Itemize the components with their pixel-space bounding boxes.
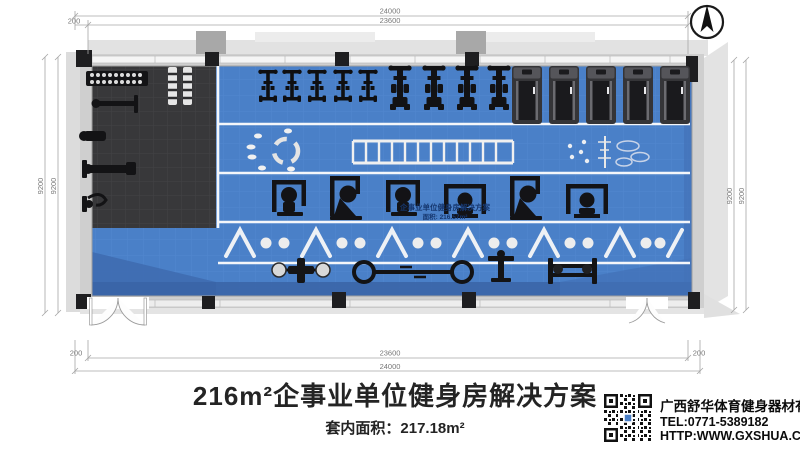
dim-bottom-inner: 23600	[380, 349, 401, 358]
dim-left-inner: 9200	[49, 178, 58, 195]
treadmill-icon	[512, 66, 542, 124]
dim-left-outer: 9200	[36, 178, 45, 195]
door-leaf	[90, 298, 93, 325]
dim-bottom-offset-right: 200	[693, 349, 706, 358]
company-tel: TEL:0771-5389182	[660, 415, 800, 429]
floor-plan: 企事业单位健身房解决方案 面积: 216.57m²	[0, 0, 800, 374]
dim-bottom-outer: 24000	[380, 362, 401, 371]
door-leaf	[144, 298, 147, 325]
treadmill-icon	[549, 66, 579, 124]
dim-top-outer: 24000	[380, 7, 401, 16]
dumbbell-rack-icon	[86, 71, 148, 86]
dim-right-outer: 9200	[737, 188, 746, 205]
plan-watermark-line1: 企事业单位健身房解决方案	[399, 202, 490, 212]
treadmill-icon	[660, 66, 690, 124]
company-website: HTTP:WWW.GXSHUA.COM	[660, 429, 800, 443]
north-arrow-icon	[691, 5, 723, 38]
company-name: 广西舒华体育健身器材有限公司	[660, 395, 800, 415]
title-block: 216m²企事业单位健身房解决方案 套内面积：217.18m²	[0, 374, 800, 450]
company-block: 广西舒华体育健身器材有限公司 TEL:0771-5389182 HTTP:WWW…	[604, 394, 800, 444]
dim-top-offset: 200	[68, 17, 81, 26]
dim-right-inner: 9200	[725, 188, 734, 205]
plan-watermark-line2: 面积: 216.57m²	[423, 212, 469, 221]
gym-floorplan-poster: 企事业单位健身房解决方案 面积: 216.57m²	[0, 0, 800, 450]
treadmill-icon	[586, 66, 616, 124]
dim-top-inner: 23600	[380, 16, 401, 25]
adjustable-bench-icon	[79, 131, 106, 141]
dim-bottom-offset-left: 200	[70, 349, 83, 358]
free-weight-mat-zone	[92, 66, 216, 228]
treadmill-icon	[623, 66, 653, 124]
qr-code	[604, 394, 652, 442]
